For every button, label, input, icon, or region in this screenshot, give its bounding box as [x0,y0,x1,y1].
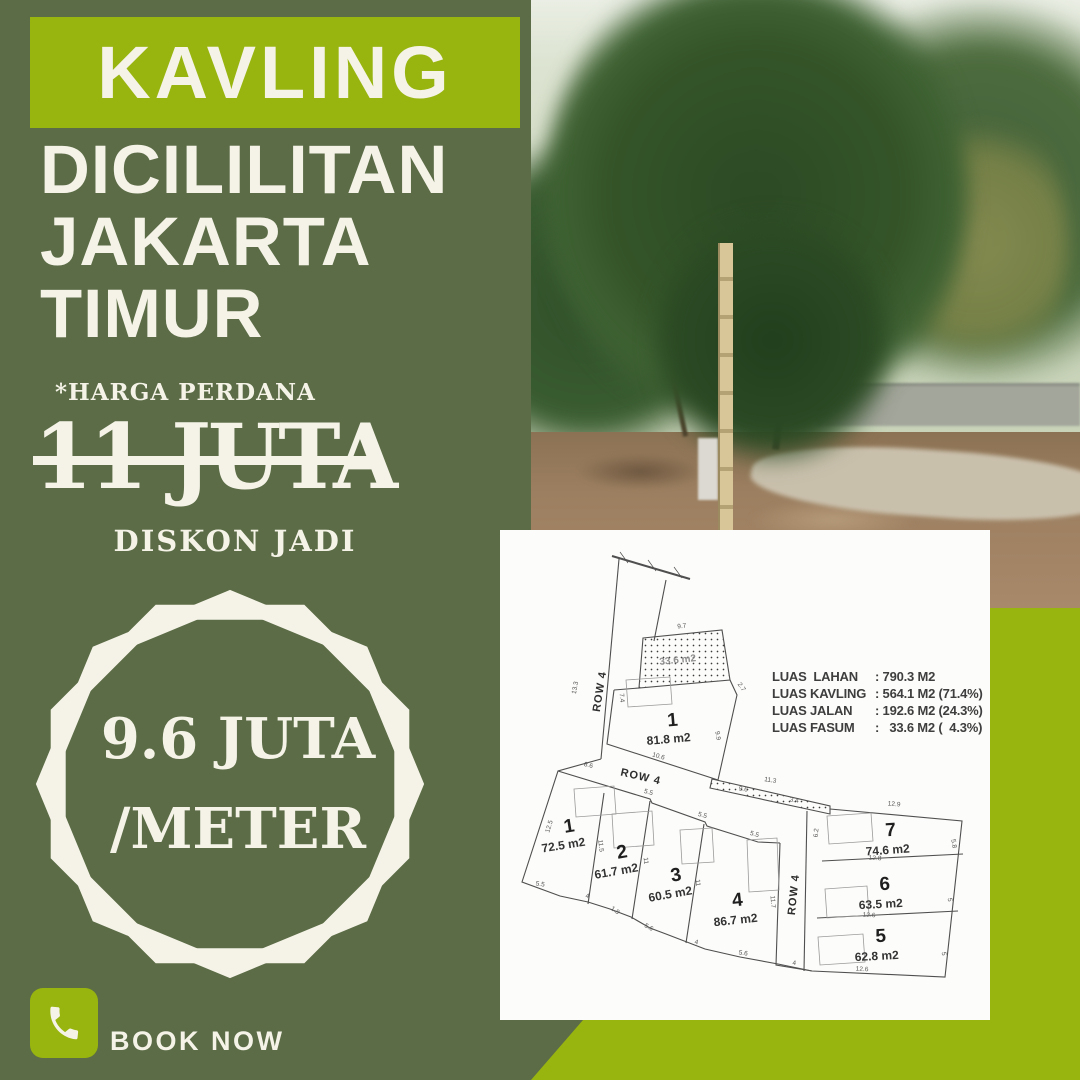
siteplan-drawing: 181.8 m2172.5 m2261.7 m2360.5 m2486.7 m2… [500,530,990,1020]
white-pillar [698,438,718,500]
dimension-label: 9.9 [713,731,722,741]
legend-label: LUAS KAVLING [772,685,875,702]
legend-label: LUAS JALAN [772,702,875,719]
dimension-label: 11.3 [764,776,778,785]
dimension-label: 5.5 [749,830,760,839]
site-photo [531,0,1080,608]
discount-label: DISKON JADI [0,524,470,558]
badge-price: 9.6 JUTA [101,694,375,784]
dimension-label: 12.6 [856,966,869,974]
plot-area: 72.5 m2 [541,835,587,856]
headline-banner: KAVLING [30,17,520,128]
area-legend: LUAS LAHAN: 790.3 M2 LUAS KAVLING: 564.1… [772,668,983,736]
bamboo-pole [718,243,733,565]
plot-area: 62.8 m2 [854,948,899,964]
siteplan-card: 181.8 m2172.5 m2261.7 m2360.5 m2486.7 m2… [500,530,990,1020]
plot-number: 7 [885,820,897,842]
row-label: ROW 4 [591,670,609,712]
dimension-label: 5.6 [643,922,655,933]
dimension-label: 4 [694,939,699,947]
row-label: ROW 4 [786,874,802,916]
plot-number: 1 [562,815,576,837]
dimension-label: 5.5 [643,788,654,797]
plot-number: 5 [875,926,887,948]
lower-foliage [652,207,894,475]
legend-row: LUAS FASUM: 33.6 M2 ( 4.3%) [772,719,983,736]
location-line-1: DICILILITAN [40,134,448,206]
plot-number: 2 [615,841,629,864]
location-line-3: TIMUR [40,278,448,350]
dimension-label: 1.8 [609,905,621,916]
dimension-label: 5.6 [738,949,748,957]
dimension-label: 12.8 [869,855,882,863]
dimension-label: 11.5 [596,839,604,852]
legend-value: : 192.6 M2 (24.3%) [875,702,983,719]
location-line-2: JAKARTA [40,206,448,278]
row-label: ROW 4 [619,767,662,788]
plot-number: 1 [666,710,679,732]
plot-area: 61.7 m2 [593,860,639,881]
poster: KAVLING DICILILITAN JAKARTA TIMUR *HARGA… [0,0,1080,1080]
dimension-label: 10.6 [651,751,665,761]
price-badge: 9.6 JUTA /METER [36,582,440,986]
dimension-label: 12.9 [888,801,901,809]
legend-row: LUAS KAVLING: 564.1 M2 (71.4%) [772,685,983,702]
legend-value: : 564.1 M2 (71.4%) [875,685,983,702]
dimension-label: 7.4 [618,693,626,703]
dimension-label: 12.5 [544,819,555,834]
location-title: DICILILITAN JAKARTA TIMUR [40,134,448,350]
headline-text: KAVLING [97,30,453,115]
plot-area: 63.5 m2 [858,896,903,912]
price-note: *HARGA PERDANA [55,379,316,406]
dimension-label: 8.6 [583,761,594,770]
dimension-label: 4 [792,960,797,967]
strikethrough-line [33,456,373,465]
dimension-label: 2.7 [736,681,747,693]
dimension-label: 11 [642,857,650,865]
plot-area: 60.5 m2 [647,883,693,904]
dimension-label: 5 [946,897,954,902]
plot-area: 86.7 m2 [713,911,759,930]
dimension-label: 12.6 [863,912,876,920]
legend-label: LUAS FASUM [772,719,875,736]
legend-value: : 33.6 M2 ( 4.3%) [875,719,982,736]
dimension-label: 13.3 [571,681,580,695]
plot-number: 4 [731,889,744,911]
legend-row: LUAS LAHAN: 790.3 M2 [772,668,983,685]
phone-button[interactable] [30,988,98,1058]
phone-icon [44,1003,84,1043]
plot-number: 6 [879,874,891,896]
plot-number: 3 [669,864,683,887]
plot-area: 81.8 m2 [646,730,691,748]
dimension-label: 11 [694,879,702,887]
dimension-label: 6.2 [813,828,821,838]
dimension-label: 5.5 [535,880,545,888]
dimension-label: 9.7 [677,623,687,631]
book-now-label[interactable]: BOOK NOW [110,1026,285,1057]
badge-unit: /METER [110,784,366,874]
legend-label: LUAS LAHAN [772,668,875,685]
dimension-label: 5 [940,951,948,956]
dimension-label: 5.8 [949,839,958,849]
dimension-label: 11.7 [768,896,776,909]
dimension-label: 5.5 [697,811,708,820]
legend-row: LUAS JALAN: 192.6 M2 (24.3%) [772,702,983,719]
legend-value: : 790.3 M2 [875,668,935,685]
